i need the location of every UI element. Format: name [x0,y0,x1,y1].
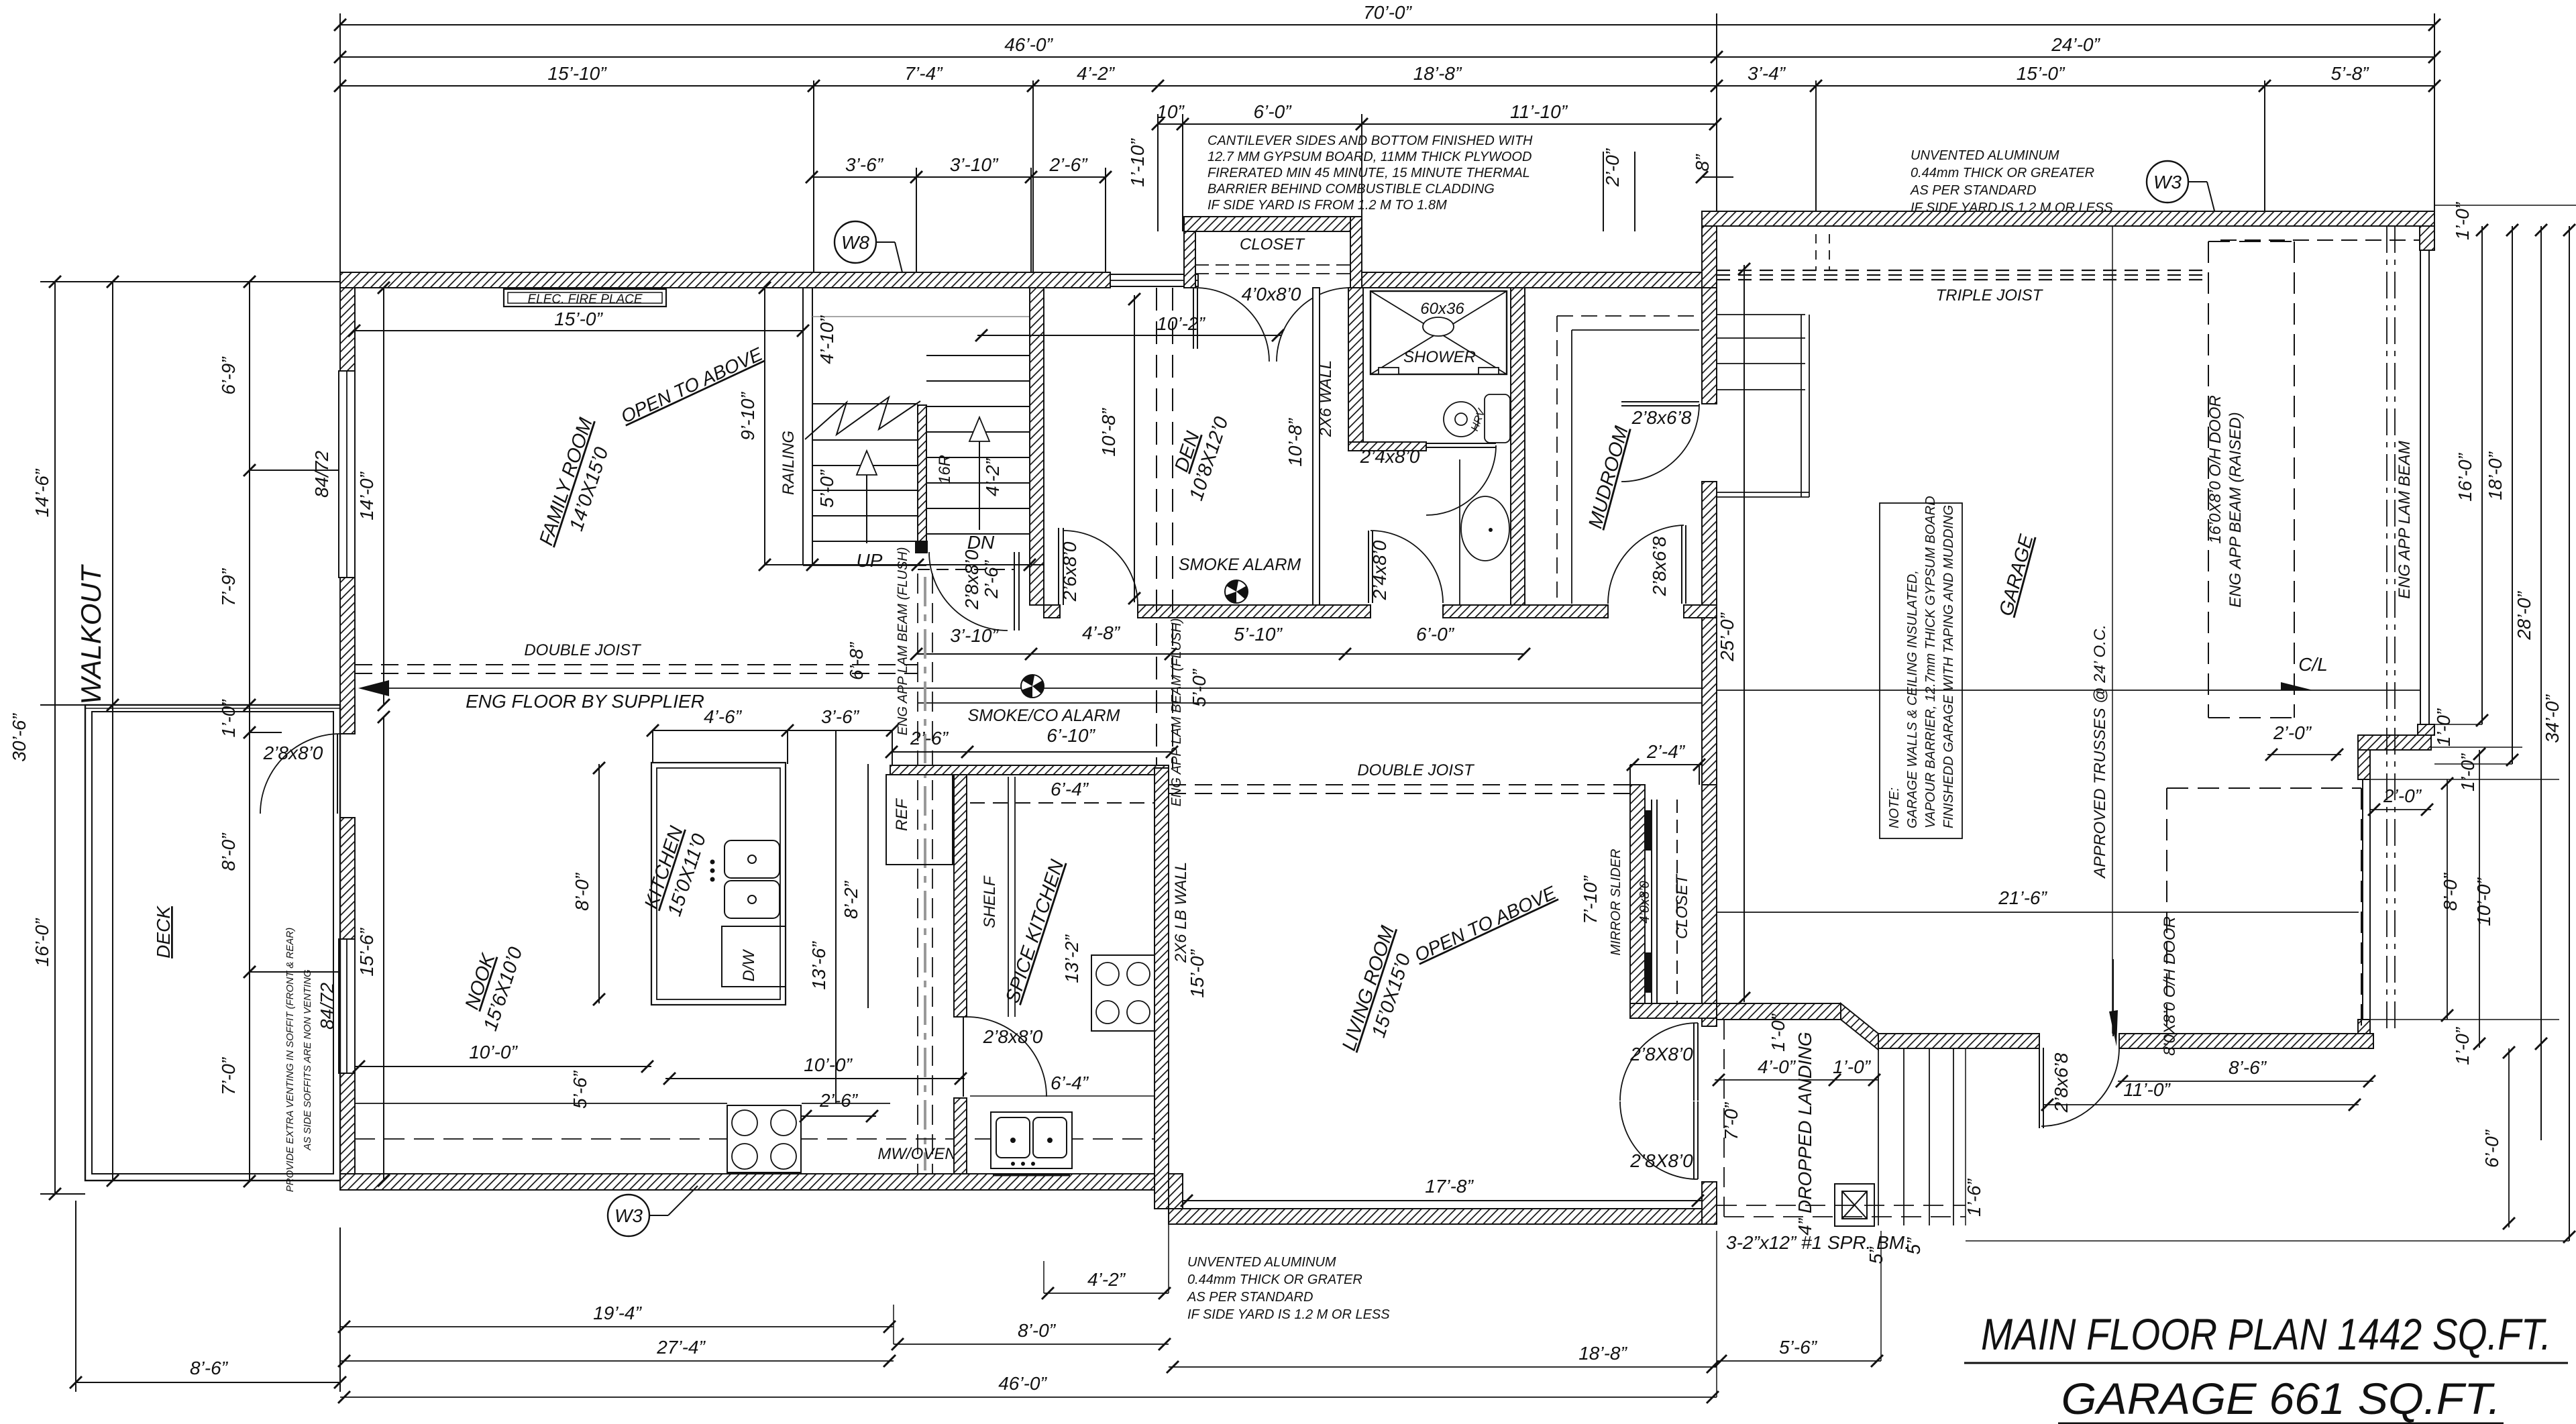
svg-text:4’0x8’0: 4’0x8’0 [1242,284,1301,305]
svg-text:17’-8”: 17’-8” [1425,1176,1474,1197]
svg-text:10’-0”: 10’-0” [804,1054,853,1075]
svg-text:RAILING: RAILING [780,431,798,495]
svg-text:24’-0”: 24’-0” [2051,34,2100,55]
svg-text:BARRIER BEHIND COMBUSTIBLE CLA: BARRIER BEHIND COMBUSTIBLE CLADDING [1207,182,1495,197]
svg-text:10’-8”: 10’-8” [1098,408,1119,457]
svg-text:CLOSET: CLOSET [1673,873,1691,939]
svg-text:PROVIDE EXTRA VENTING IN SOFFI: PROVIDE EXTRA VENTING IN SOFFIT (FRONT &… [284,928,296,1192]
svg-text:1’-0”: 1’-0” [2452,201,2473,240]
svg-text:ENG APP LAM BEAM (FLUSH): ENG APP LAM BEAM (FLUSH) [1169,618,1184,807]
svg-text:ENG APP BEAM (RAISED): ENG APP BEAM (RAISED) [2226,412,2245,608]
svg-text:2’8x8’0: 2’8x8’0 [983,1026,1043,1047]
svg-text:FIRERATED MIN 45 MINUTE, 15 MI: FIRERATED MIN 45 MINUTE, 15 MINUTE THERM… [1207,166,1530,180]
svg-text:8’-0”: 8’-0” [572,872,592,911]
svg-text:CLOSET: CLOSET [1240,235,1305,254]
svg-text:84/72: 84/72 [311,451,332,498]
svg-text:5’-8”: 5’-8” [2330,63,2369,84]
svg-text:4’-0”: 4’-0” [1758,1056,1796,1077]
svg-text:10”: 10” [1157,101,1185,122]
svg-text:8’-6”: 8’-6” [190,1358,229,1378]
svg-text:5”: 5” [1866,1246,1886,1264]
svg-text:19’-4”: 19’-4” [593,1303,642,1323]
svg-text:AS PER STANDARD: AS PER STANDARD [1187,1290,1313,1305]
svg-text:16R: 16R [936,455,954,484]
svg-text:MAIN FLOOR PLAN 1442 SQ.FT.: MAIN FLOOR PLAN 1442 SQ.FT. [1981,1309,2551,1359]
svg-text:7’-0”: 7’-0” [1721,1101,1741,1140]
svg-text:7’-9”: 7’-9” [218,567,239,606]
svg-text:46’-0”: 46’-0” [1004,34,1053,55]
svg-text:1’-6”: 1’-6” [1964,1178,1984,1217]
svg-text:8”: 8” [1692,154,1713,172]
svg-text:SHELF: SHELF [981,875,999,928]
svg-text:6’-9”: 6’-9” [218,356,239,395]
svg-text:4” DROPPED LANDING: 4” DROPPED LANDING [1794,1032,1815,1235]
svg-text:AS SIDE SOFFITS ARE NON VENTIN: AS SIDE SOFFITS ARE NON VENTING [302,969,313,1151]
svg-text:2’8x8’0: 2’8x8’0 [263,743,323,763]
svg-text:REF: REF [893,798,911,831]
svg-text:4’-8”: 4’-8” [1082,622,1121,643]
svg-text:DN: DN [967,532,995,553]
svg-text:2’6x8’0: 2’6x8’0 [1059,541,1080,602]
svg-text:MW/OVEN: MW/OVEN [877,1145,957,1163]
svg-text:C/L: C/L [2298,654,2328,675]
svg-text:8’-6”: 8’-6” [2229,1057,2267,1078]
svg-text:5’-10”: 5’-10” [1234,624,1283,645]
svg-text:SHOWER: SHOWER [1403,348,1476,366]
svg-text:8’-0”: 8’-0” [1018,1320,1057,1341]
svg-text:3’-10”: 3’-10” [950,154,999,175]
svg-text:2’-0”: 2’-0” [2273,722,2312,743]
svg-text:27’-4”: 27’-4” [656,1337,706,1358]
svg-text:ENG FLOOR BY SUPPLIER: ENG FLOOR BY SUPPLIER [466,691,704,712]
svg-text:4’-2”: 4’-2” [982,457,1003,496]
svg-text:4’-2”: 4’-2” [1077,63,1116,84]
svg-text:10’-8”: 10’-8” [1285,418,1305,467]
svg-text:5’-0”: 5’-0” [816,469,837,508]
svg-text:2’8X8’0: 2’8X8’0 [1629,1044,1693,1064]
svg-text:12.7 MM GYPSUM BOARD, 11MM THI: 12.7 MM GYPSUM BOARD, 11MM THICK PLYWOOD [1207,150,1532,164]
svg-text:25’-0”: 25’-0” [1717,612,1737,662]
svg-text:W3: W3 [614,1205,643,1226]
svg-text:6’-4”: 6’-4” [1051,779,1089,800]
svg-text:6’-0”: 6’-0” [1253,101,1292,122]
svg-text:16’-0”: 16’-0” [2455,453,2475,502]
svg-text:2’8x8’0: 2’8x8’0 [961,549,982,610]
svg-text:15’-0”: 15’-0” [1187,949,1207,998]
svg-text:APPROVED TRUSSES @ 24’ O.C.: APPROVED TRUSSES @ 24’ O.C. [2091,624,2109,879]
svg-text:2X6 WALL: 2X6 WALL [1317,360,1335,437]
svg-text:2X6 LB WALL: 2X6 LB WALL [1172,862,1190,963]
svg-text:DOUBLE JOIST: DOUBLE JOIST [524,641,642,659]
svg-text:10’-0”: 10’-0” [469,1042,518,1062]
svg-text:1’-0”: 1’-0” [1768,1013,1788,1052]
svg-text:8’0X8’0 O/H DOOR: 8’0X8’0 O/H DOOR [2161,916,2179,1056]
svg-text:2’4x8’0: 2’4x8’0 [1369,540,1390,600]
svg-text:3’-4”: 3’-4” [1748,63,1786,84]
svg-text:3’-6”: 3’-6” [821,706,860,727]
svg-text:1’-0”: 1’-0” [2452,1026,2473,1065]
svg-text:18’-8”: 18’-8” [1413,63,1462,84]
svg-text:4’-6”: 4’-6” [704,706,743,727]
svg-text:W3: W3 [2153,172,2182,193]
svg-text:46’-0”: 46’-0” [998,1373,1047,1394]
svg-text:UNVENTED ALUMINUM: UNVENTED ALUMINUM [1187,1255,1336,1270]
svg-text:2’4x8’0: 2’4x8’0 [1360,446,1420,467]
svg-text:2’-6”: 2’-6” [910,728,949,749]
svg-text:1’-0”: 1’-0” [2433,708,2454,747]
svg-text:NOTE:: NOTE: [1887,787,1902,828]
svg-text:2’-4”: 2’-4” [1646,741,1686,762]
svg-text:21’-6”: 21’-6” [1998,887,2047,908]
svg-text:11’-0”: 11’-0” [2123,1079,2171,1100]
svg-text:SMOKE/CO ALARM: SMOKE/CO ALARM [968,706,1120,725]
svg-text:2’-6”: 2’-6” [981,559,1002,599]
svg-text:3’-6”: 3’-6” [845,154,884,175]
svg-text:15’-0”: 15’-0” [2017,63,2065,84]
svg-text:GARAGE WALLS & CEILING INSULAT: GARAGE WALLS & CEILING INSULATED, [1905,570,1920,828]
svg-text:6’-0”: 6’-0” [2481,1129,2502,1168]
svg-text:2’8x6’8: 2’8x6’8 [1631,407,1692,428]
svg-text:18’-8”: 18’-8” [1578,1343,1627,1364]
svg-text:6’-0”: 6’-0” [1416,624,1455,645]
svg-text:1’-0”: 1’-0” [1833,1056,1872,1077]
svg-text:18’-0”: 18’-0” [2485,451,2506,500]
svg-text:5’-6”: 5’-6” [570,1070,590,1109]
svg-text:7’-4”: 7’-4” [904,63,943,84]
svg-text:0.44mm THICK OR GREATER: 0.44mm THICK OR GREATER [1911,166,2094,180]
svg-text:7’-10”: 7’-10” [1580,875,1601,924]
svg-text:5’-0”: 5’-0” [1189,668,1210,707]
svg-text:16’0X8’0 O/H DOOR: 16’0X8’0 O/H DOOR [2206,395,2224,543]
svg-text:84/72: 84/72 [317,983,337,1030]
svg-text:10’-0”: 10’-0” [2473,877,2494,926]
svg-text:28’-0”: 28’-0” [2514,591,2534,641]
svg-text:IF SIDE YARD IS 1.2 M OR LESS: IF SIDE YARD IS 1.2 M OR LESS [1187,1307,1390,1322]
svg-text:15’-0”: 15’-0” [554,309,603,329]
svg-text:9’-10”: 9’-10” [737,392,758,441]
svg-text:2’8x6’8: 2’8x6’8 [1649,536,1670,596]
svg-text:5”: 5” [1903,1237,1924,1255]
svg-text:WALKOUT: WALKOUT [75,563,107,704]
svg-text:4’-10”: 4’-10” [816,315,837,364]
svg-text:70’-0”: 70’-0” [1363,2,1412,23]
svg-text:GARAGE 661 SQ.FT.: GARAGE 661 SQ.FT. [2061,1374,2501,1423]
svg-text:6’-8”: 6’-8” [846,641,867,680]
svg-text:15’-10”: 15’-10” [547,63,607,84]
svg-text:2’-0”: 2’-0” [1602,148,1623,187]
svg-text:IF SIDE YARD IS FROM 1.2 M TO: IF SIDE YARD IS FROM 1.2 M TO 1.8M [1207,198,1447,213]
svg-text:MIRROR SLIDER: MIRROR SLIDER [1609,849,1623,956]
svg-text:FINISHEDD GARAGE WITH TAPING A: FINISHEDD GARAGE WITH TAPING AND MUDDING [1941,505,1956,828]
svg-text:14’-0”: 14’-0” [356,472,377,521]
svg-text:2’-6”: 2’-6” [819,1090,859,1111]
svg-text:6’-10”: 6’-10” [1046,725,1095,746]
svg-text:TRIPLE JOIST: TRIPLE JOIST [1936,286,2044,305]
svg-text:D/W: D/W [740,948,758,981]
svg-text:2’-6”: 2’-6” [1049,154,1088,175]
svg-text:4’0x8’0: 4’0x8’0 [1638,881,1652,923]
svg-text:SMOKE ALARM: SMOKE ALARM [1179,555,1301,574]
svg-text:7’-0”: 7’-0” [218,1056,239,1095]
svg-text:15’-6”: 15’-6” [356,928,377,977]
svg-text:DECK: DECK [153,906,174,959]
svg-text:13’-6”: 13’-6” [808,941,829,990]
svg-text:DOUBLE JOIST: DOUBLE JOIST [1357,761,1475,779]
svg-text:1’-10”: 1’-10” [1127,138,1148,187]
svg-text:UNVENTED ALUMINUM: UNVENTED ALUMINUM [1911,148,2059,163]
svg-text:8’-0”: 8’-0” [218,832,239,871]
svg-text:6’-4”: 6’-4” [1051,1073,1089,1093]
svg-text:10’-2”: 10’-2” [1157,313,1205,334]
svg-text:4’-2”: 4’-2” [1087,1269,1126,1290]
svg-text:CANTILEVER SIDES AND BOTTOM FI: CANTILEVER SIDES AND BOTTOM FINISHED WIT… [1207,133,1533,148]
svg-text:30’-6”: 30’-6” [9,713,30,762]
svg-text:2’-0”: 2’-0” [2383,785,2422,806]
svg-text:60x36: 60x36 [1420,300,1464,318]
svg-text:8’-2”: 8’-2” [841,880,861,919]
svg-text:2’8X8’0: 2’8X8’0 [1629,1150,1693,1171]
svg-text:34’-0”: 34’-0” [2542,694,2563,743]
svg-text:0.44mm THICK OR GRATER: 0.44mm THICK OR GRATER [1187,1272,1362,1287]
svg-text:2’8x6’8: 2’8x6’8 [2051,1052,2072,1113]
svg-text:14’-6”: 14’-6” [32,468,52,517]
svg-text:16’-0”: 16’-0” [32,918,52,967]
svg-text:ENG APP LAM BEAM: ENG APP LAM BEAM [2396,441,2414,599]
svg-text:W8: W8 [841,232,869,253]
svg-text:13’-2”: 13’-2” [1061,934,1082,983]
svg-text:AS PER STANDARD: AS PER STANDARD [1910,183,2036,198]
svg-text:ELEC. FIRE PLACE: ELEC. FIRE PLACE [527,292,642,307]
svg-text:8’-0”: 8’-0” [2440,872,2461,911]
svg-text:5’-6”: 5’-6” [1779,1337,1818,1358]
svg-text:VAPOUR BARRIER, 12.7mm THICK G: VAPOUR BARRIER, 12.7mm THICK GYPSUM BOAR… [1923,496,1938,828]
svg-text:3’-10”: 3’-10” [950,625,999,646]
svg-text:ENG APP LAM BEAM (FLUSH): ENG APP LAM BEAM (FLUSH) [896,547,910,736]
svg-text:UP: UP [857,550,883,571]
svg-text:11’-10”: 11’-10” [1510,101,1568,122]
